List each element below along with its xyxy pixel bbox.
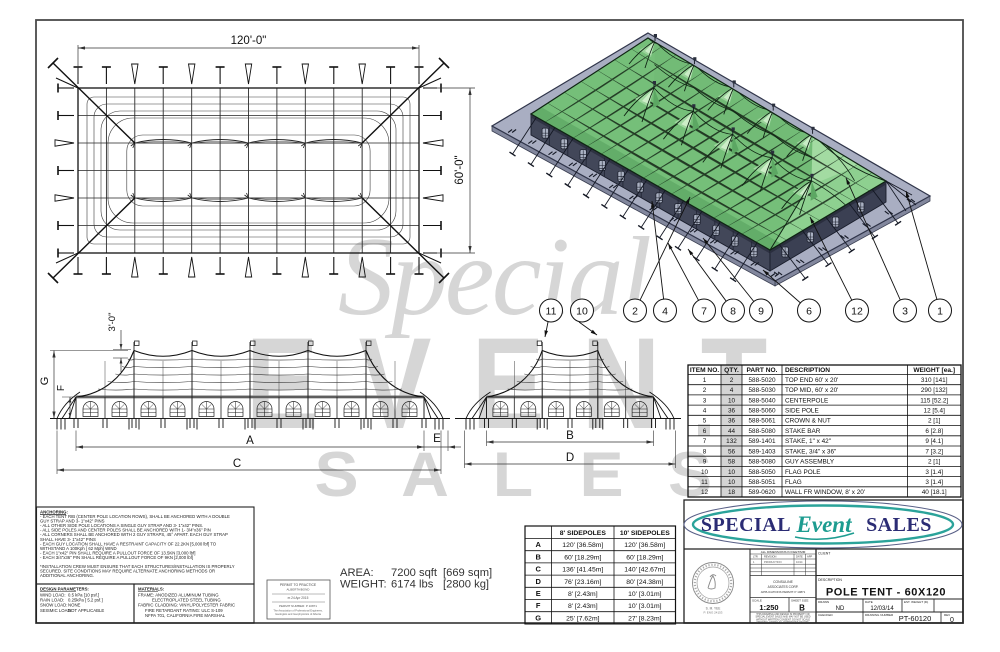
svg-text:60'-0": 60'-0": [454, 155, 466, 184]
svg-text:588-5050: 588-5050: [748, 469, 775, 476]
svg-text:9 [4.1]: 9 [4.1]: [925, 438, 943, 445]
svg-text:10: 10: [701, 469, 709, 476]
svg-text:SHEET SIZE: SHEET SIZE: [791, 599, 808, 603]
svg-text:E: E: [472, 311, 545, 456]
svg-text:SEISMIC LOAD:: SEISMIC LOAD:: [40, 608, 72, 613]
svg-text:3'-0": 3'-0": [107, 313, 118, 332]
svg-text:8' [2.43m]: 8' [2.43m]: [568, 591, 598, 598]
svg-text:1:250: 1:250: [759, 603, 778, 612]
svg-text:60' [18.29m]: 60' [18.29m]: [626, 554, 663, 561]
svg-text:589-1401: 589-1401: [748, 438, 775, 445]
svg-text:B: B: [799, 604, 805, 613]
svg-text:LTR: LTR: [753, 555, 758, 559]
svg-text:58: 58: [728, 459, 736, 466]
svg-text:588-5080: 588-5080: [748, 428, 775, 435]
svg-text:9: 9: [703, 459, 707, 466]
svg-text:C: C: [535, 565, 541, 574]
svg-text:P. ENG 24153: P. ENG 24153: [704, 611, 723, 615]
svg-text:CENTERPOLE: CENTERPOLE: [785, 397, 828, 404]
svg-text:10: 10: [728, 479, 736, 486]
svg-text:S: S: [314, 439, 358, 509]
svg-text:DESIGN PARAMETERS:: DESIGN PARAMETERS:: [40, 587, 89, 592]
svg-text:10' [3.01m]: 10' [3.01m]: [628, 591, 662, 598]
svg-text:588-5060: 588-5060: [748, 408, 775, 415]
svg-text:8: 8: [703, 448, 707, 455]
svg-text:3 [1.4]: 3 [1.4]: [925, 479, 943, 486]
svg-text:B: B: [535, 552, 541, 561]
svg-text:27' [8.23m]: 27' [8.23m]: [628, 615, 662, 622]
svg-text:PART NO.: PART NO.: [746, 367, 777, 374]
svg-text:SCALE: SCALE: [752, 599, 762, 603]
svg-text:WEIGHT [ea.]: WEIGHT [ea.]: [913, 367, 955, 374]
svg-text:A: A: [535, 540, 541, 549]
svg-text:Event: Event: [796, 512, 853, 537]
svg-text:589-0620: 589-0620: [748, 489, 775, 496]
svg-text:12 [5.4]: 12 [5.4]: [924, 408, 946, 415]
svg-text:589-1403: 589-1403: [748, 448, 775, 455]
svg-text:6: 6: [806, 305, 812, 317]
svg-text:C: C: [233, 458, 241, 470]
svg-text:Geologists and Geophysicists o: Geologists and Geophysicists of Alberta: [275, 612, 321, 616]
svg-text:G: G: [39, 377, 51, 386]
svg-text:7: 7: [701, 305, 707, 317]
svg-text:PRODUCTION: PRODUCTION: [764, 560, 782, 564]
svg-text:2: 2: [703, 387, 707, 394]
svg-text:1: 1: [937, 305, 943, 317]
svg-text:2 [1]: 2 [1]: [928, 418, 941, 425]
svg-text:7200 sqft: 7200 sqft: [391, 567, 438, 579]
svg-text:12: 12: [851, 305, 863, 317]
svg-text:290 [132]: 290 [132]: [921, 387, 948, 394]
svg-text:E: E: [536, 589, 541, 598]
svg-text:76' [23.16m]: 76' [23.16m]: [564, 579, 601, 586]
svg-text:APPLICATIONS PERMIT: P 10871: APPLICATIONS PERMIT: P 10871: [761, 590, 806, 594]
svg-text:12: 12: [701, 489, 709, 496]
svg-text:4: 4: [662, 305, 668, 317]
svg-text:9: 9: [758, 305, 764, 317]
svg-text:588-5061: 588-5061: [748, 418, 775, 425]
svg-text:10: 10: [576, 305, 588, 317]
svg-text:18: 18: [728, 489, 736, 496]
svg-text:ASSOCIATES CORP.: ASSOCIATES CORP.: [768, 585, 799, 589]
svg-text:DESCRIPTION: DESCRIPTION: [818, 578, 842, 582]
svg-text:588-5020: 588-5020: [748, 377, 775, 384]
svg-text:TOP MID, 60' x 20': TOP MID, 60' x 20': [785, 387, 838, 394]
svg-text:6174 lbs: 6174 lbs: [391, 579, 434, 591]
svg-text:588-5030: 588-5030: [748, 387, 775, 394]
svg-text:11: 11: [701, 479, 708, 486]
svg-text:A: A: [401, 439, 449, 509]
svg-text:B: B: [566, 430, 574, 442]
svg-text:STAKE, 3/4" x 36": STAKE, 3/4" x 36": [785, 448, 836, 455]
svg-text:60' [18.29m]: 60' [18.29m]: [564, 554, 601, 561]
svg-text:NOT APPLICABLE: NOT APPLICABLE: [68, 608, 104, 613]
svg-text:44: 44: [728, 428, 736, 435]
svg-text:7 [3.2]: 7 [3.2]: [925, 448, 943, 455]
svg-text:D: D: [566, 452, 574, 464]
svg-text:- EACH 3/4"x36" PIN SHALL REQU: - EACH 3/4"x36" PIN SHALL REQUIRE A PULL…: [40, 555, 193, 560]
svg-text:132: 132: [726, 438, 737, 445]
svg-text:12/03/14: 12/03/14: [870, 606, 894, 612]
svg-text:A: A: [246, 435, 254, 447]
svg-text:AREA:: AREA:: [340, 567, 374, 579]
svg-text:4: 4: [703, 408, 707, 415]
svg-text:7: 7: [703, 438, 707, 445]
svg-text:F: F: [536, 601, 541, 610]
svg-text:3: 3: [703, 397, 707, 404]
svg-text:WEIGHT:: WEIGHT:: [340, 579, 387, 591]
svg-text:36: 36: [728, 418, 736, 425]
svg-text:1: 1: [703, 377, 707, 384]
svg-text:140' [42.67m]: 140' [42.67m]: [624, 567, 665, 574]
svg-text:80' [24.38m]: 80' [24.38m]: [626, 579, 663, 586]
svg-text:10: 10: [728, 469, 736, 476]
svg-text:DRAWN: DRAWN: [818, 600, 829, 604]
svg-text:CLIENT: CLIENT: [818, 552, 831, 556]
svg-text:The Association of Professiona: The Association of Professional Engineer…: [273, 609, 323, 613]
svg-text:WALL FR WINDOW, 8' x 20': WALL FR WINDOW, 8' x 20': [785, 489, 865, 496]
svg-text:DRAWING. VERIFY ALL DIMENSIONS: DRAWING. VERIFY ALL DIMENSIONS ON SITE.: [757, 621, 810, 624]
svg-text:GUY ASSEMBLY: GUY ASSEMBLY: [785, 459, 835, 466]
svg-text:310 [141]: 310 [141]: [921, 377, 948, 384]
svg-text:120' [36.58m]: 120' [36.58m]: [624, 542, 665, 549]
svg-text:m 24 Apr 2015: m 24 Apr 2015: [288, 596, 309, 600]
svg-text:36: 36: [728, 408, 736, 415]
svg-text:ND: ND: [836, 606, 845, 612]
svg-text:10: 10: [728, 397, 736, 404]
svg-text:2: 2: [730, 377, 734, 384]
svg-text:D: D: [535, 577, 541, 586]
svg-text:4: 4: [730, 387, 734, 394]
svg-text:6 [2.8]: 6 [2.8]: [925, 428, 943, 435]
svg-text:8' SIDEPOLES: 8' SIDEPOLES: [560, 530, 607, 537]
svg-text:E: E: [433, 433, 441, 445]
svg-text:F: F: [56, 385, 67, 391]
svg-text:3 [1.4]: 3 [1.4]: [925, 469, 943, 476]
svg-text:QTY.: QTY.: [724, 367, 739, 374]
svg-text:L: L: [493, 439, 533, 509]
svg-text:10' [3.01m]: 10' [3.01m]: [628, 603, 662, 610]
svg-text:ALBERTA/BOND: ALBERTA/BOND: [287, 588, 311, 592]
svg-text:STAKE, 1" x 42": STAKE, 1" x 42": [785, 438, 831, 445]
svg-text:5: 5: [703, 418, 707, 425]
svg-text:SPECIAL: SPECIAL: [701, 514, 791, 536]
svg-text:CONSULINE: CONSULINE: [773, 580, 794, 584]
svg-text:REVISION: REVISION: [764, 555, 777, 559]
svg-text:115 [52.2]: 115 [52.2]: [920, 397, 948, 404]
svg-text:136' [41.45m]: 136' [41.45m]: [562, 567, 603, 574]
svg-text:0: 0: [950, 617, 954, 624]
svg-text:FLAG POLE: FLAG POLE: [785, 469, 821, 476]
svg-text:NFPA 701, CALIFORNIA FIRE MARS: NFPA 701, CALIFORNIA FIRE MARSHAL: [145, 613, 226, 618]
svg-text:SALES: SALES: [866, 514, 932, 536]
svg-text:120'-0": 120'-0": [231, 35, 267, 47]
svg-text:11: 11: [546, 305, 557, 317]
svg-text:120' [36.58m]: 120' [36.58m]: [562, 542, 603, 549]
svg-text:DRAWING NUMBER: DRAWING NUMBER: [865, 613, 894, 617]
svg-text:G: G: [535, 613, 541, 622]
svg-text:8' [2.43m]: 8' [2.43m]: [568, 603, 598, 610]
svg-text:PERMIT TO PRACTICE: PERMIT TO PRACTICE: [280, 583, 317, 587]
svg-text:TOP END 60' x 20': TOP END 60' x 20': [785, 377, 838, 384]
svg-text:ITEM NO.: ITEM NO.: [690, 367, 719, 374]
svg-text:STAKE BAR: STAKE BAR: [785, 428, 821, 435]
svg-text:6: 6: [703, 428, 707, 435]
svg-text:DESCRIPTION: DESCRIPTION: [785, 367, 830, 374]
svg-text:PT-60120: PT-60120: [899, 614, 932, 623]
svg-text:MATERIALS:: MATERIALS:: [138, 587, 165, 592]
svg-text:588-5051: 588-5051: [748, 479, 775, 486]
svg-text:25' [7.62m]: 25' [7.62m]: [566, 615, 600, 622]
svg-text:10' SIDEPOLES: 10' SIDEPOLES: [620, 530, 670, 537]
svg-text:SIDE POLE: SIDE POLE: [785, 408, 819, 415]
svg-text:APP: APP: [807, 555, 812, 559]
svg-text:588-5080: 588-5080: [748, 459, 775, 466]
svg-text:ADDITIONAL ANCHORING.: ADDITIONAL ANCHORING.: [40, 573, 94, 578]
svg-text:E: E: [246, 311, 319, 456]
svg-text:POLE TENT - 60X120: POLE TENT - 60X120: [826, 587, 946, 599]
svg-text:[669 sqm]: [669 sqm]: [443, 567, 492, 579]
svg-text:2: 2: [632, 305, 638, 317]
svg-text:DATE: DATE: [796, 555, 803, 559]
svg-text:10/14: 10/14: [796, 560, 803, 564]
svg-text:PERMIT NUMBER: P 10871: PERMIT NUMBER: P 10871: [279, 604, 317, 608]
svg-text:56: 56: [728, 448, 736, 455]
svg-text:[2800 kg]: [2800 kg]: [443, 579, 489, 591]
svg-text:FLAG: FLAG: [785, 479, 802, 486]
svg-text:3: 3: [902, 305, 908, 317]
svg-text:2 [1]: 2 [1]: [928, 459, 941, 466]
svg-text:ALL DIMENSIONS IN FEET/MM: ALL DIMENSIONS IN FEET/MM: [761, 550, 806, 554]
svg-text:40 [18.1]: 40 [18.1]: [922, 489, 947, 496]
svg-text:EST. WEIGHT (lb): EST. WEIGHT (lb): [904, 600, 928, 604]
svg-text:CHECKED: CHECKED: [818, 613, 834, 617]
svg-text:8: 8: [730, 305, 736, 317]
svg-text:DATE: DATE: [865, 600, 873, 604]
svg-text:E: E: [579, 439, 623, 509]
svg-text:588-5040: 588-5040: [748, 397, 775, 404]
svg-text:CROWN & NUT: CROWN & NUT: [785, 418, 831, 425]
